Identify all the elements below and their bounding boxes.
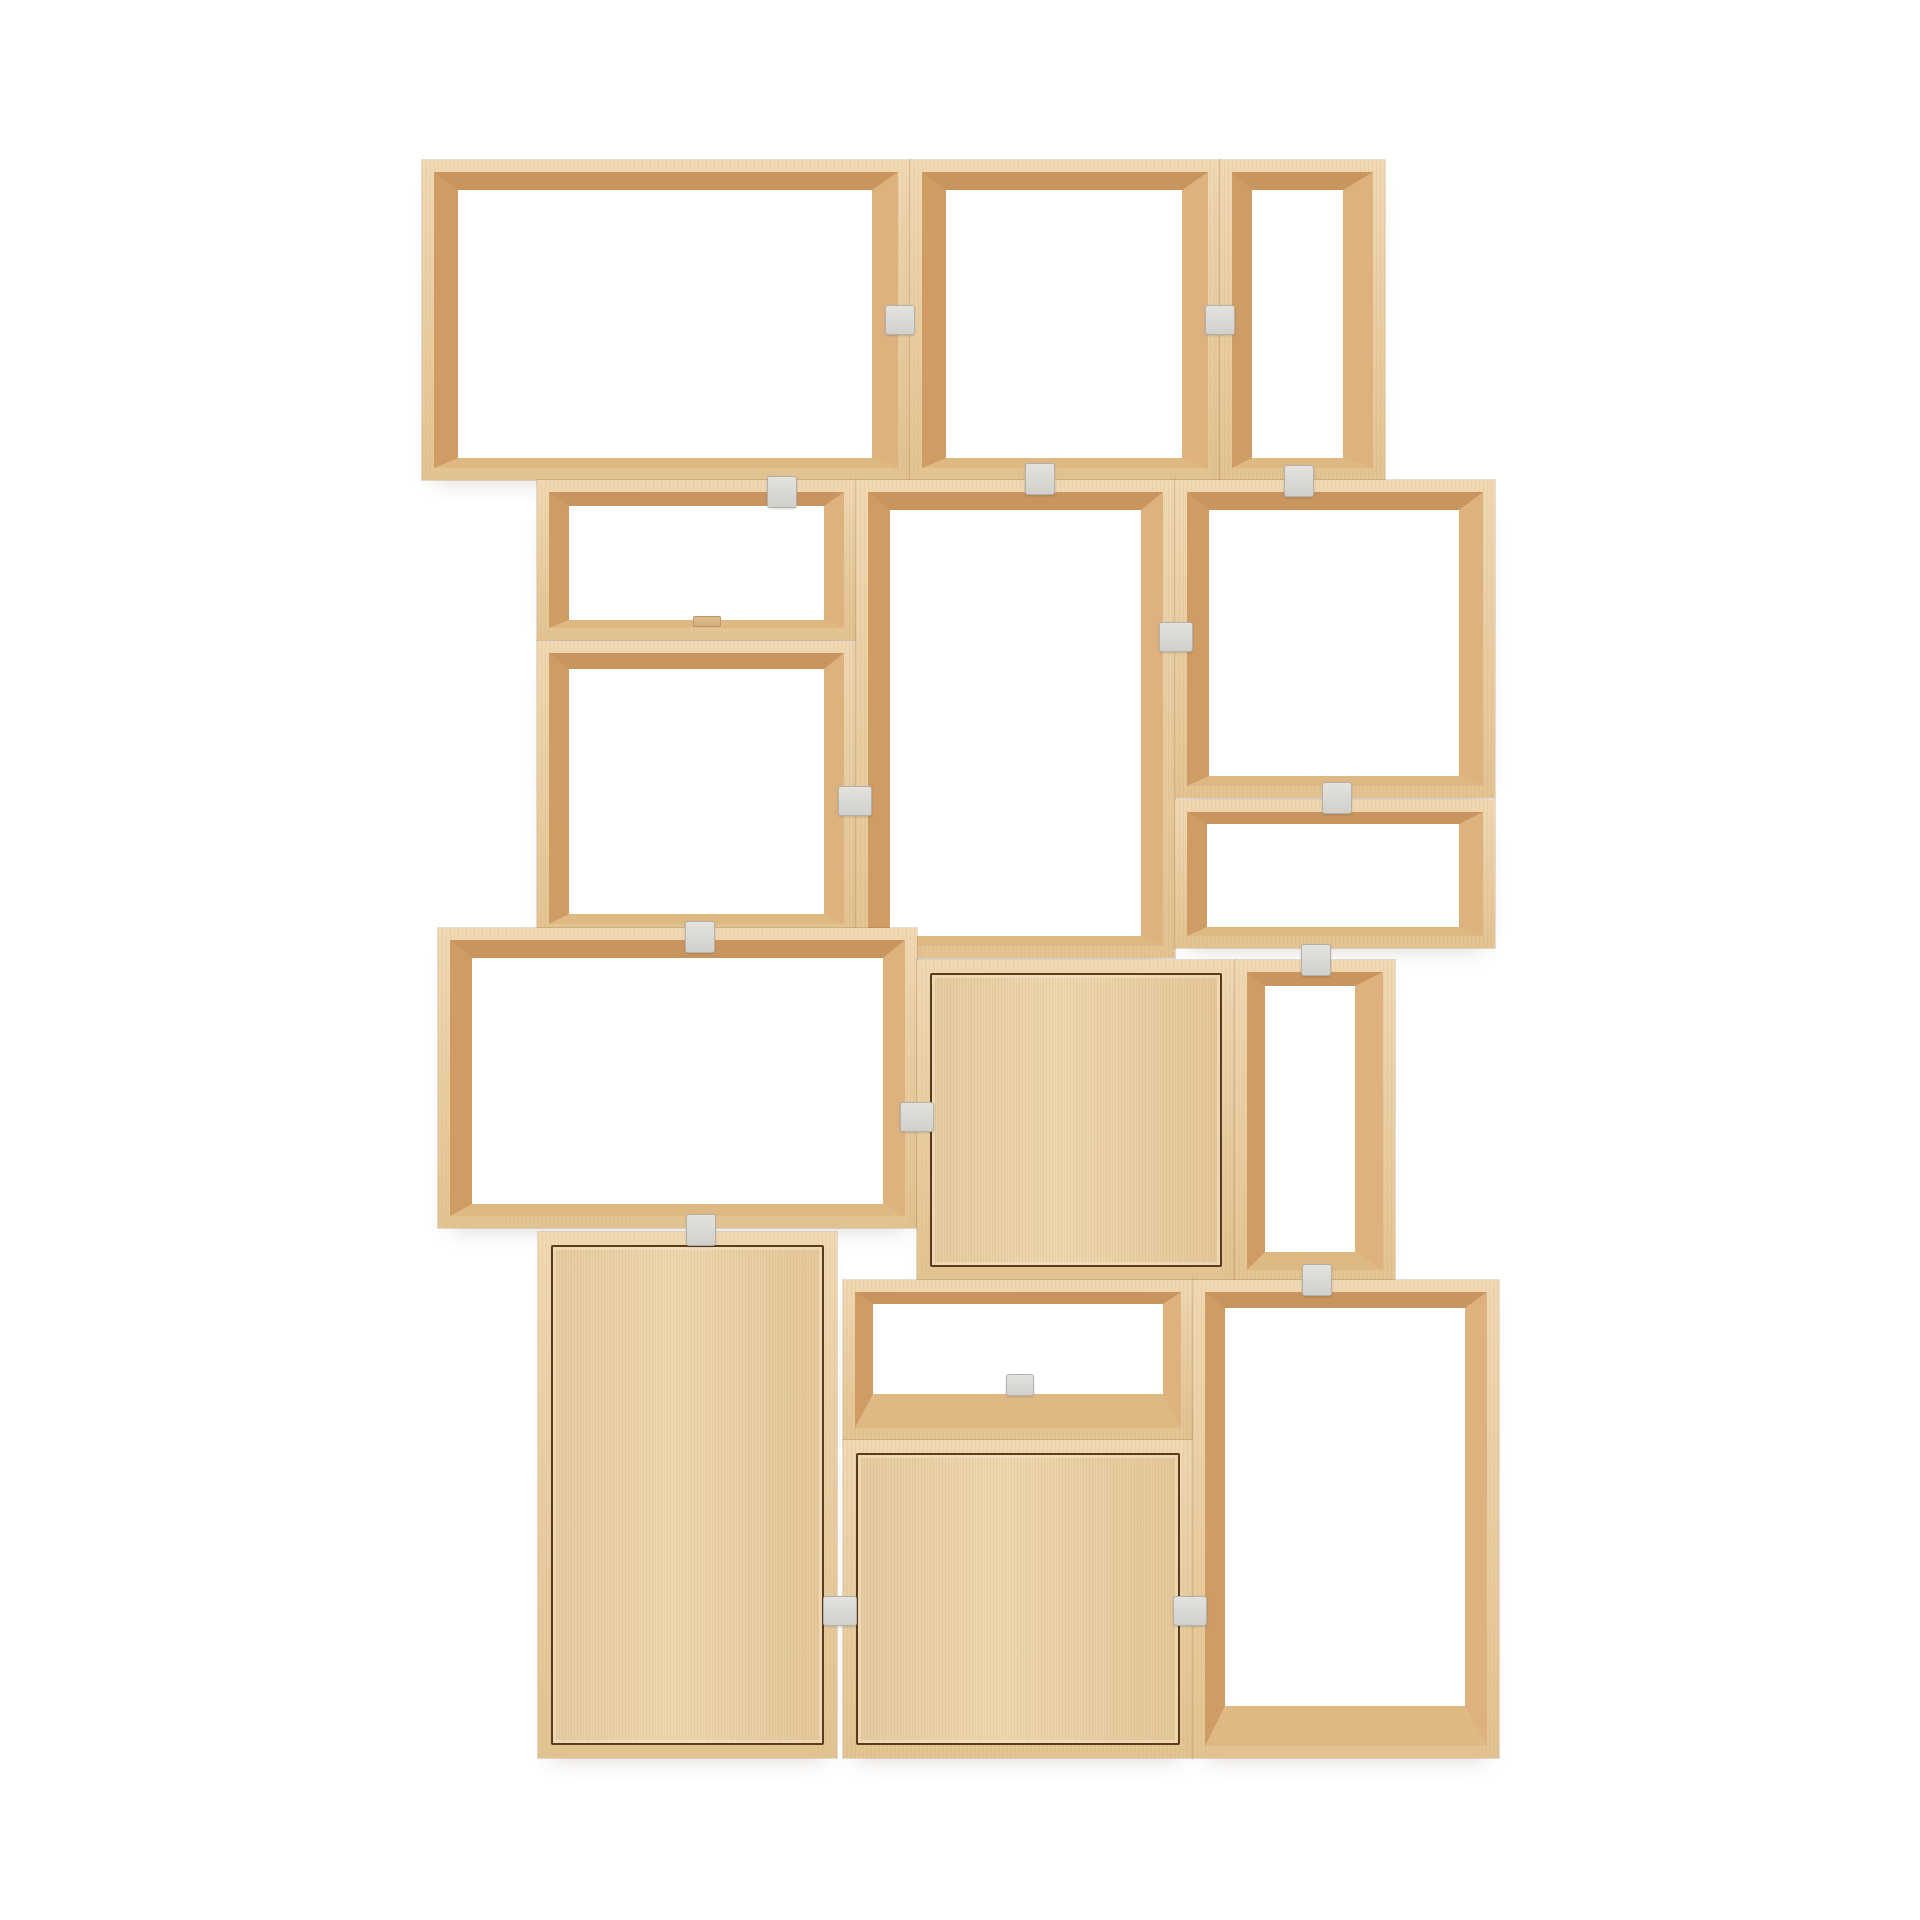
open-box-interior: [1247, 972, 1383, 1270]
door-box-row3-middle: [917, 960, 1235, 1280]
connector-clip: [1159, 622, 1193, 652]
open-box-interior: [549, 492, 844, 628]
connector-clip: [1284, 465, 1314, 497]
connector-clip: [1025, 463, 1055, 495]
cabinet-door: [856, 1453, 1180, 1745]
open-box-row2-middle: [856, 480, 1175, 958]
open-box-interior: [549, 653, 844, 924]
cabinet-door: [551, 1245, 824, 1745]
connector-clip: [885, 305, 915, 335]
connector-clip: [685, 921, 715, 953]
shelving-unit-product-image: [0, 0, 1920, 1920]
connector-clip: [1301, 944, 1331, 976]
connector-clip: [767, 476, 797, 508]
open-box-interior: [1205, 1292, 1487, 1746]
open-box-row2-right-upper: [1175, 480, 1495, 798]
connector-clip: [1322, 782, 1352, 814]
connector-clip: [1205, 305, 1235, 335]
connector-clip: [1006, 1374, 1034, 1396]
connector-clip: [838, 786, 872, 816]
open-box-interior: [922, 172, 1208, 468]
connector-clip: [1302, 1264, 1332, 1296]
open-box-row3-right: [1235, 960, 1395, 1282]
open-box-interior: [450, 940, 905, 1216]
open-box-row2-left-lower: [537, 641, 856, 936]
open-box-top-right: [1220, 160, 1385, 480]
open-box-row2-right-lower: [1175, 800, 1495, 948]
connector-clip: [900, 1102, 934, 1132]
connector-clip: [686, 1214, 716, 1246]
open-box-row4-middle: [843, 1280, 1193, 1440]
open-box-row4-right: [1193, 1280, 1499, 1758]
open-box-interior: [1187, 812, 1483, 936]
open-box-top-middle: [910, 160, 1220, 480]
open-box-interior: [868, 492, 1163, 946]
connector-clip: [1173, 1596, 1207, 1626]
open-box-row3-left: [438, 928, 917, 1228]
open-box-interior: [855, 1292, 1181, 1428]
open-box-top-left: [422, 160, 910, 480]
door-box-row4-middle: [843, 1440, 1193, 1758]
door-box-row4-left: [538, 1232, 837, 1758]
connector-clip: [693, 616, 721, 627]
open-box-interior: [1232, 172, 1373, 468]
cabinet-door: [930, 973, 1222, 1267]
connector-clip: [823, 1596, 857, 1626]
open-box-interior: [434, 172, 898, 468]
open-box-interior: [1187, 492, 1483, 786]
